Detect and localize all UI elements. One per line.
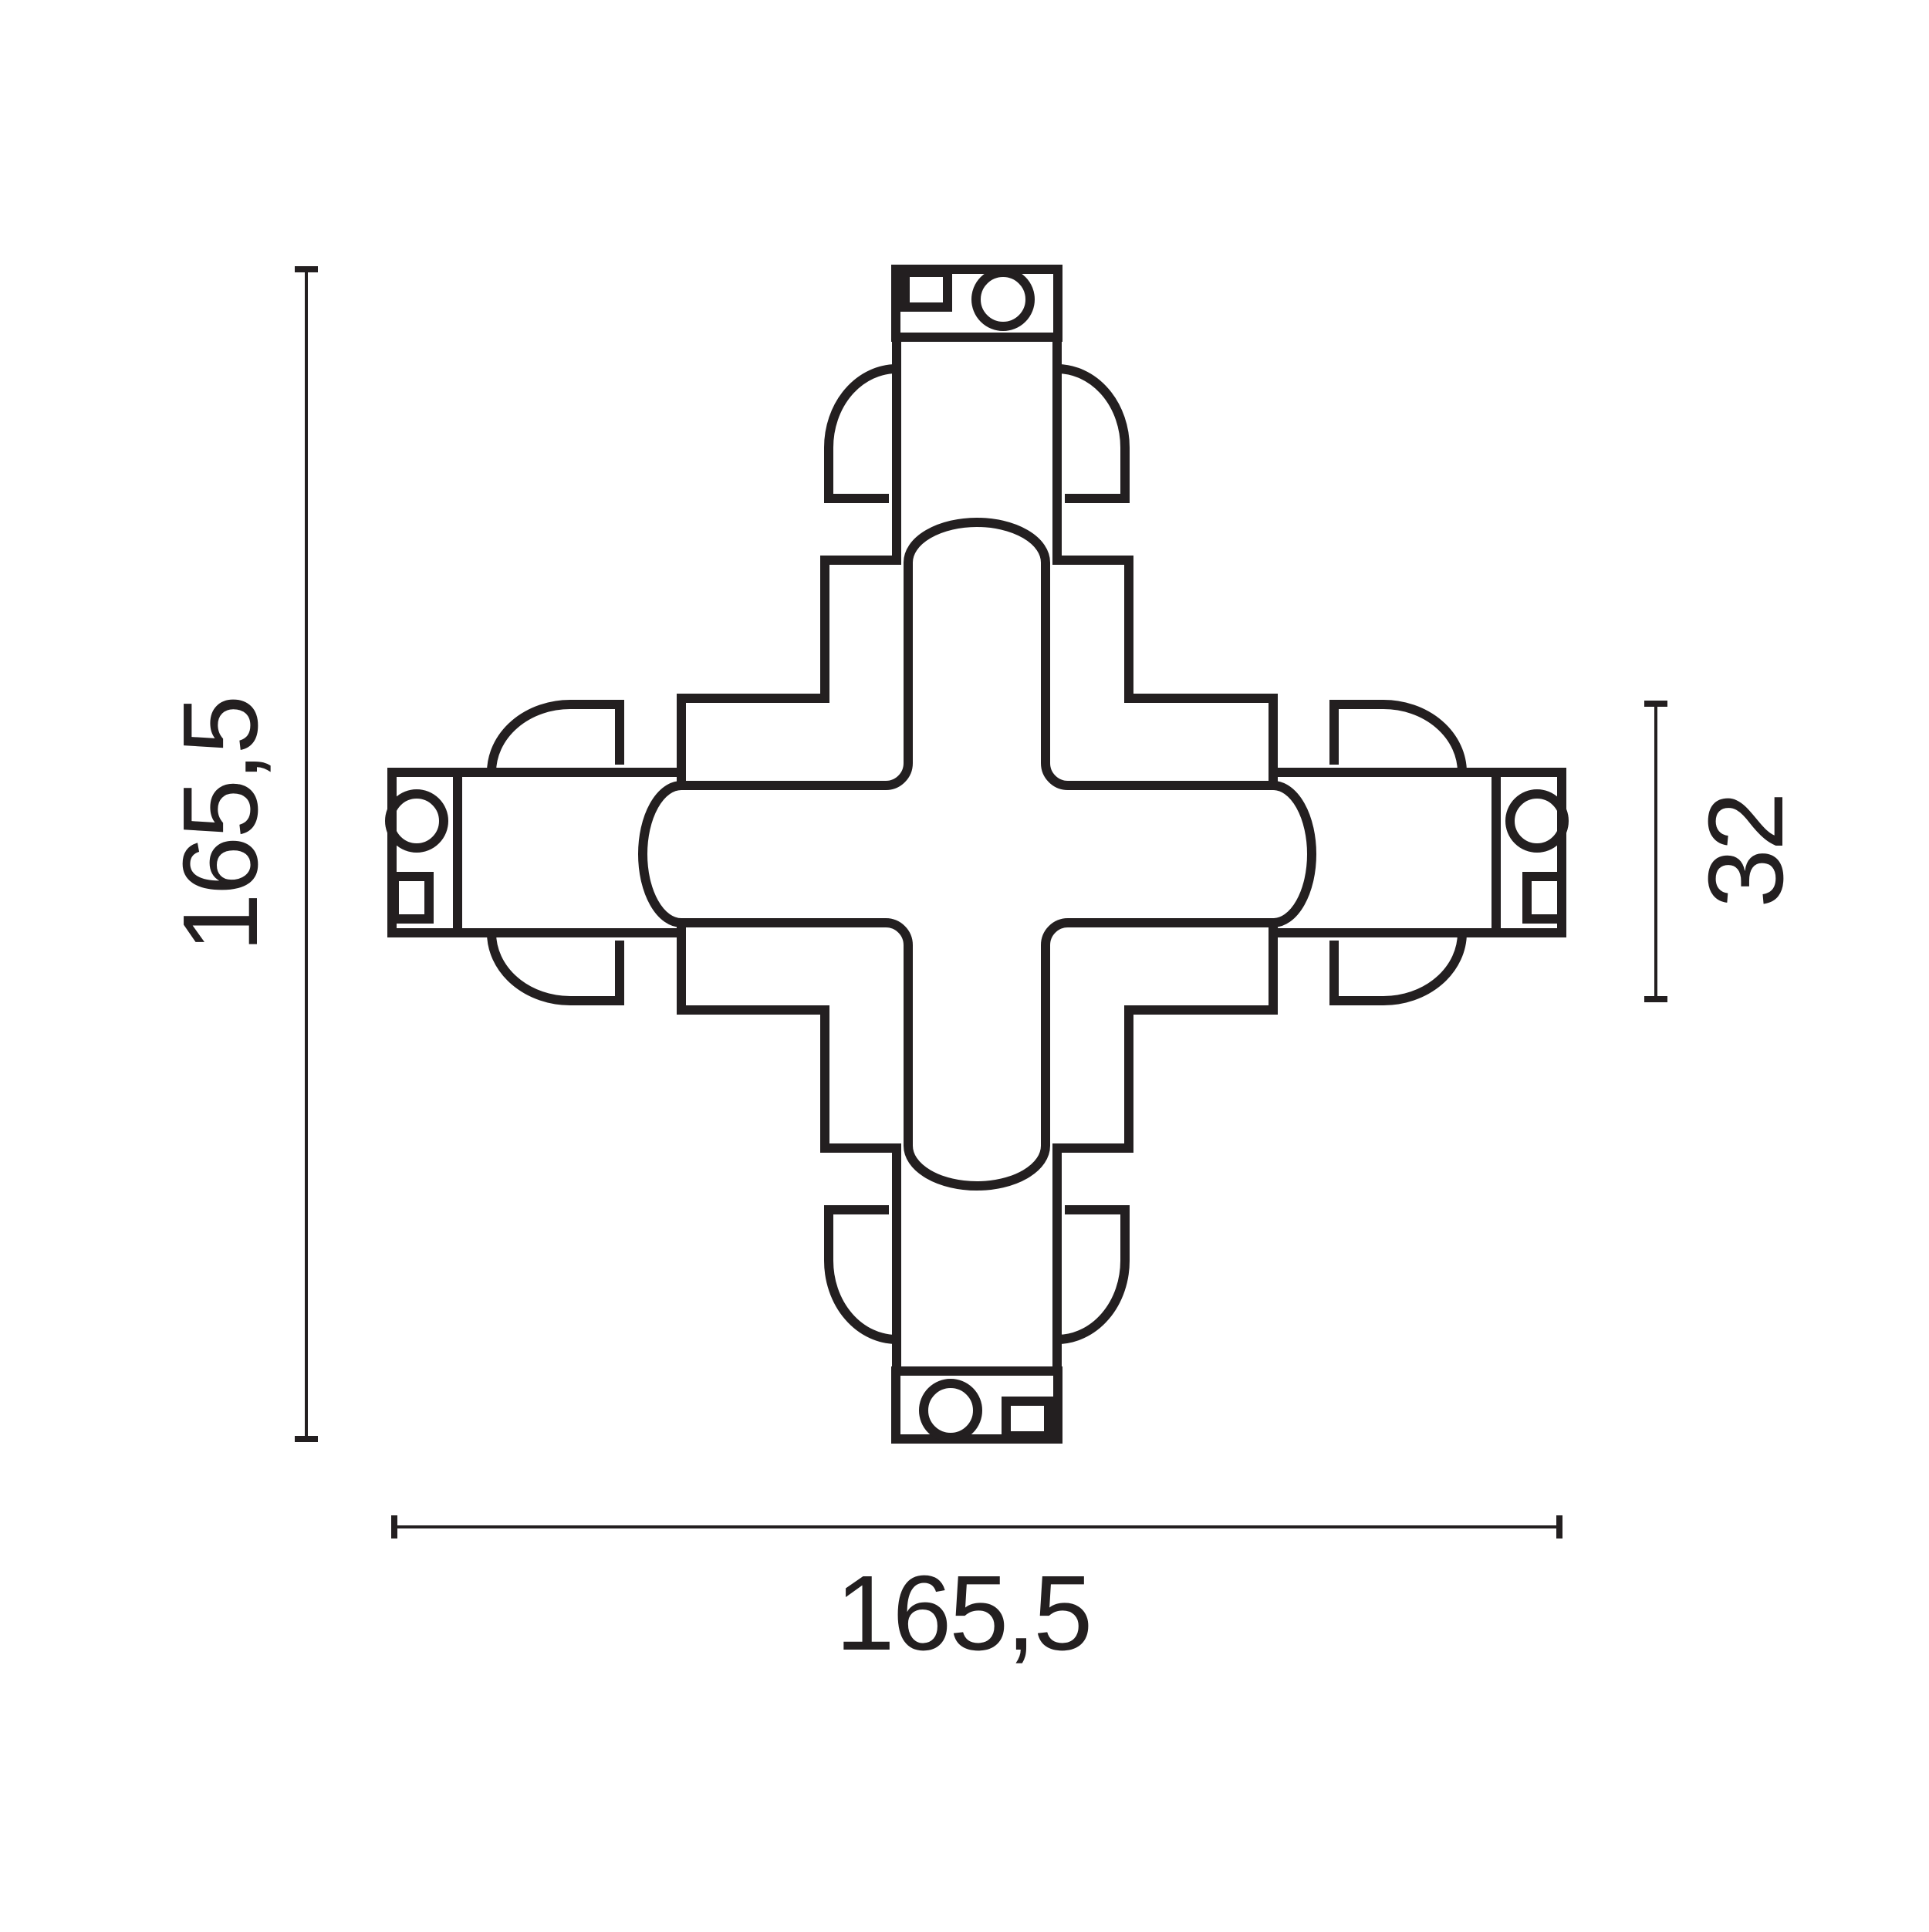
bottom-arm-right-ear-arc	[1057, 1210, 1125, 1339]
dimension-track: 32	[1644, 704, 1806, 999]
dimension-height-label: 165,5	[161, 697, 280, 952]
center-capsule-cross	[643, 522, 1312, 1186]
right-arm-bottom-ear-arc	[1334, 933, 1462, 1001]
top-arm-head-square	[905, 272, 948, 307]
right-arm-head-square	[1527, 876, 1562, 919]
bottom-arm-right-step-outline	[1057, 923, 1273, 1371]
drawing-canvas: 165,5 165,5 32	[0, 0, 1929, 1932]
bottom-arm-left-ear-arc	[829, 1210, 897, 1339]
top-arm-right-step-outline	[1057, 337, 1273, 785]
right-arm-top-ear-arc	[1334, 704, 1462, 772]
left-arm-head-square	[394, 876, 429, 919]
dimension-width-label: 165,5	[836, 1554, 1090, 1673]
right-arm-head-circle	[1510, 794, 1564, 848]
technical-drawing: 165,5 165,5 32	[0, 0, 1929, 1932]
dimension-width: 165,5	[394, 1515, 1559, 1673]
top-arm-head-circle	[976, 272, 1030, 326]
bottom-arm-left-step-outline	[681, 923, 897, 1371]
bottom-arm-head-circle	[924, 1383, 978, 1437]
top-arm-right-ear-arc	[1057, 369, 1125, 498]
left-arm-top-ear-arc	[492, 704, 620, 772]
bottom-arm-head-square	[1006, 1401, 1049, 1436]
left-arm-bottom-ear-arc	[492, 933, 620, 1001]
right-arm	[1273, 704, 1564, 1001]
top-arm-left-ear-arc	[829, 369, 897, 498]
dimension-track-label: 32	[1687, 794, 1806, 908]
left-arm-head-circle	[390, 794, 444, 848]
left-arm	[390, 704, 681, 1001]
dimension-height: 165,5	[161, 269, 318, 1439]
top-arm-left-step-outline	[681, 337, 897, 785]
